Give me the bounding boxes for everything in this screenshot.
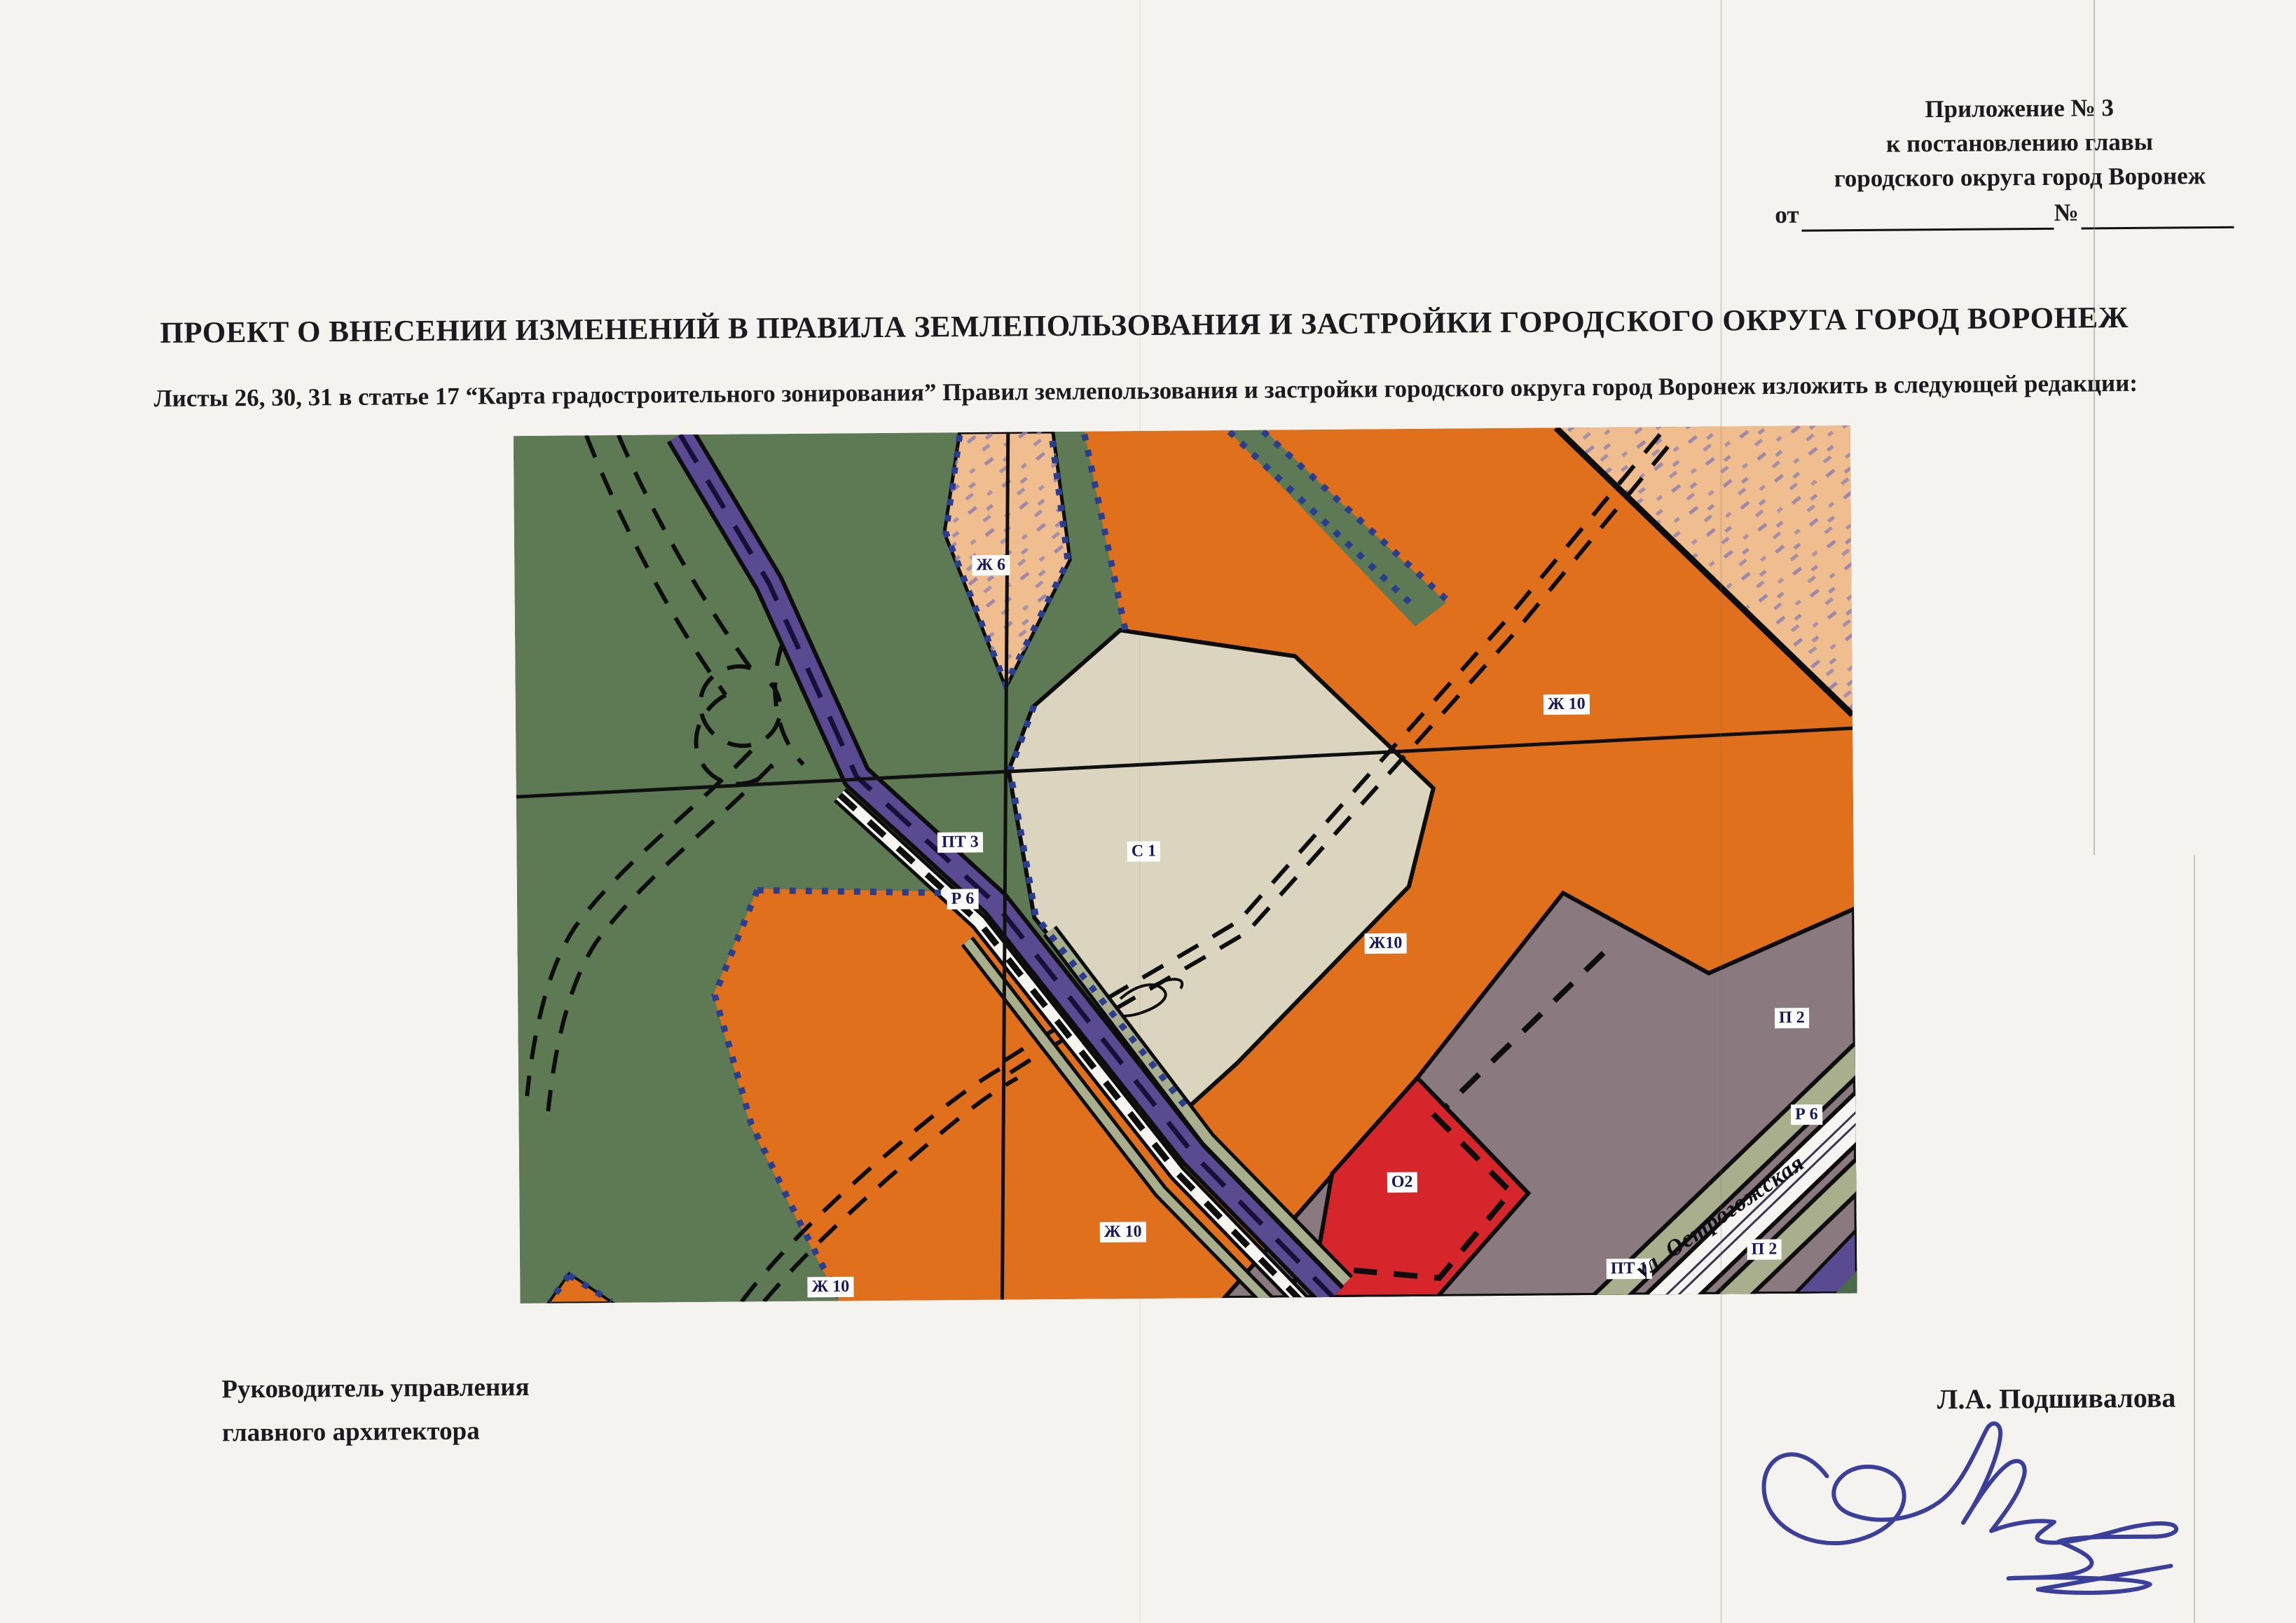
role-line-1: Руководитель управления <box>221 1366 530 1411</box>
zoning-map: Ж 6Ж 10С 1ПТ 3Р 6Ж10П 2Р 6О2ПТ 1П 2Ж 10Ж… <box>514 425 1857 1303</box>
number-blank-line <box>2082 198 2234 230</box>
from-label: от <box>1775 198 1802 232</box>
appendix-line-1: Приложение № 3 <box>1774 89 2264 127</box>
zone-label: Р 6 <box>1791 1104 1822 1125</box>
zone-label: Ж 6 <box>972 555 1010 575</box>
appendix-block: Приложение № 3 к постановлению главы гор… <box>1774 89 2266 231</box>
zone-label: Ж 10 <box>1100 1222 1146 1243</box>
date-blank-line <box>1801 200 2054 232</box>
appendix-line-3: городского округа город Воронеж <box>1775 158 2265 196</box>
appendix-date-number-row: от № <box>1775 193 2265 231</box>
zone-label: О2 <box>1387 1172 1417 1193</box>
appendix-line-2: к постановлению главы <box>1774 123 2264 161</box>
document-title: ПРОЕКТ О ВНЕСЕНИИ ИЗМЕНЕНИЙ В ПРАВИЛА ЗЕ… <box>0 299 2292 352</box>
document-subtitle: Листы 26, 30, 31 в статье 17 “Карта град… <box>39 369 2253 414</box>
zone-label: П 2 <box>1775 1008 1809 1028</box>
zone-label: Ж 10 <box>1544 694 1590 715</box>
number-label: № <box>2054 196 2082 230</box>
zone-label: С 1 <box>1127 841 1161 861</box>
zone-label: Р 6 <box>947 889 979 909</box>
street-name-label: ул. Острогожская <box>1633 1153 1808 1280</box>
zone-label: Ж10 <box>1364 933 1406 954</box>
role-line-2: главного архитектора <box>222 1409 530 1455</box>
zone-label: ПТ 3 <box>937 832 983 853</box>
zone-labels-layer: Ж 6Ж 10С 1ПТ 3Р 6Ж10П 2Р 6О2ПТ 1П 2Ж 10Ж… <box>514 425 1857 1303</box>
zone-label: Ж 10 <box>807 1277 853 1298</box>
handwritten-signature <box>1742 1407 2234 1607</box>
scanned-document-page: Приложение № 3 к постановлению главы гор… <box>0 0 2296 1623</box>
signature-role-block: Руководитель управления главного архитек… <box>221 1366 530 1455</box>
zone-label: П 2 <box>1747 1239 1781 1259</box>
